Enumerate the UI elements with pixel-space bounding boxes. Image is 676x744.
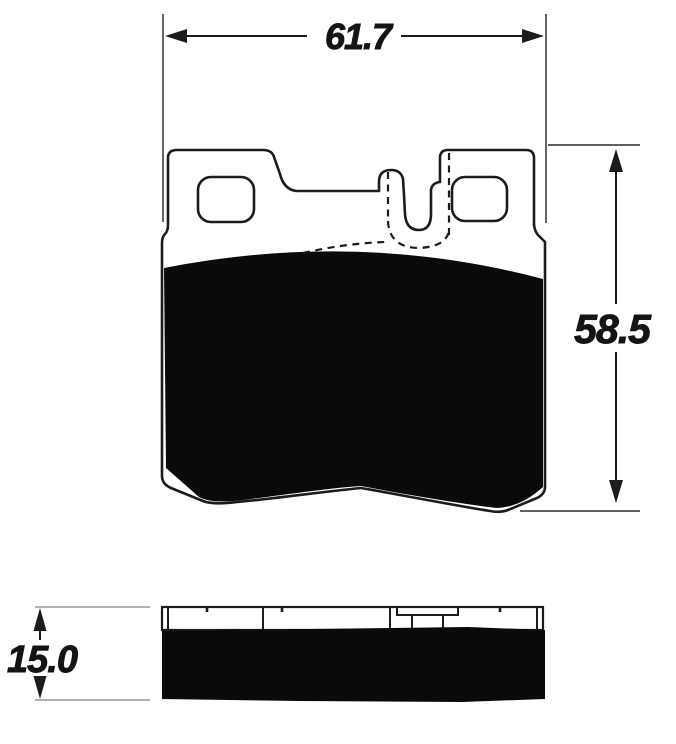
side-view bbox=[162, 607, 545, 702]
front-view bbox=[162, 150, 545, 512]
side-backing-plate bbox=[162, 607, 543, 630]
width-dimension-label: 61.7 bbox=[308, 19, 408, 55]
friction-material bbox=[164, 251, 543, 508]
arrow-left-icon bbox=[165, 29, 187, 43]
arrow-down-icon bbox=[609, 480, 623, 503]
arrow-up-icon bbox=[34, 608, 47, 631]
arrow-up-icon bbox=[609, 149, 623, 172]
side-friction-material bbox=[162, 627, 545, 702]
arrow-right-icon bbox=[522, 29, 544, 43]
brake-pad-technical-drawing: 61.7 58.5 15.0 bbox=[0, 0, 676, 744]
drawing-linework bbox=[0, 0, 676, 744]
right-mounting-hole bbox=[452, 177, 507, 221]
left-mounting-hole bbox=[198, 177, 254, 222]
height-dimension-label: 58.5 bbox=[560, 309, 664, 350]
thickness-dimension-label: 15.0 bbox=[0, 641, 84, 679]
